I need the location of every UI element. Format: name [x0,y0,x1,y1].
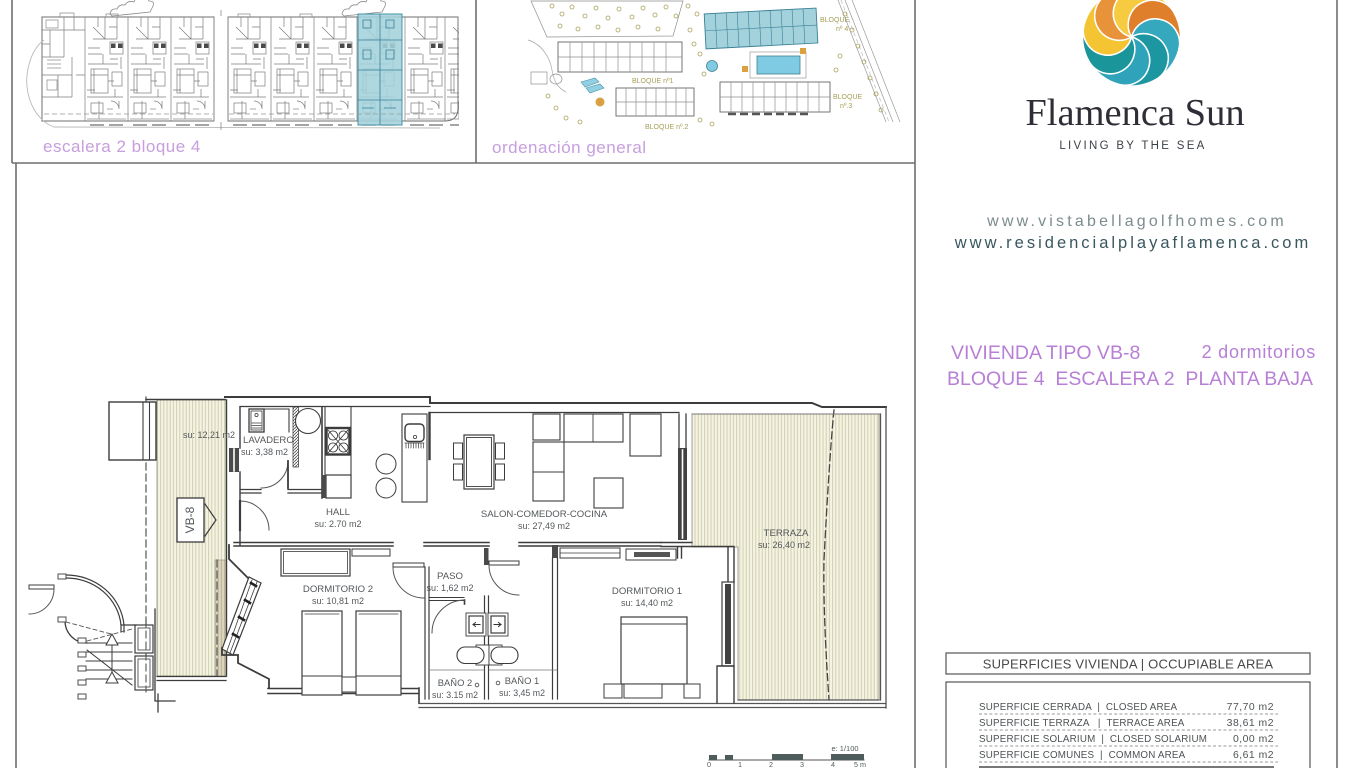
svg-text:SUPERFICIES VIVIENDA | OCCUPIA: SUPERFICIES VIVIENDA | OCCUPIABLE AREA [983,657,1274,672]
svg-text:PASO: PASO [437,571,463,582]
svg-text:SALON-COMEDOR-COCINA: SALON-COMEDOR-COCINA [481,509,608,520]
svg-text:TERRAZA: TERRAZA [764,528,809,539]
svg-text:0: 0 [707,760,711,768]
svg-text:www.vistabellagolfhomes.com: www.vistabellagolfhomes.com [986,213,1287,230]
svg-text:DORMITORIO 2: DORMITORIO 2 [303,584,373,595]
svg-text:BAÑO 2: BAÑO 2 [438,677,472,688]
svg-text:nº 4: nº 4 [836,26,848,33]
svg-text:VB-8: VB-8 [183,506,197,533]
svg-text:2: 2 [769,760,773,768]
svg-text:38,61 m2: 38,61 m2 [1227,718,1274,729]
svg-text:su: 1,62 m2: su: 1,62 m2 [426,583,473,593]
svg-text:su: 10,81 m2: su: 10,81 m2 [312,596,364,606]
svg-text:2 dormitorios: 2 dormitorios [1202,342,1316,362]
svg-text:SUPERFICIE TERRAZA | TERRAC: SUPERFICIE TERRAZA | TERRACE AREA [979,718,1185,729]
svg-text:su: 2.70 m2: su: 2.70 m2 [314,519,361,529]
svg-text:su: 3,38 m2: su: 3,38 m2 [241,447,288,457]
svg-text:LAVADERO: LAVADERO [243,435,294,446]
svg-text:Flamenca Sun: Flamenca Sun [1025,92,1244,134]
svg-text:HALL: HALL [326,507,351,518]
svg-text:www.residencialplayaflamenca.c: www.residencialplayaflamenca.com [954,234,1311,252]
svg-text:su: 26,40 m2: su: 26,40 m2 [758,540,810,550]
svg-text:SUPERFICIE CERRADA | CLOSED: SUPERFICIE CERRADA | CLOSED AREA [979,702,1178,713]
svg-text:BLOQUE nº.2: BLOQUE nº.2 [645,124,689,131]
svg-text:4: 4 [831,760,835,768]
svg-text:DORMITORIO 1: DORMITORIO 1 [612,586,682,597]
svg-text:su: 27,49 m2: su: 27,49 m2 [518,521,570,531]
svg-text:VIVIENDA TIPO VB-8: VIVIENDA TIPO VB-8 [951,342,1140,364]
svg-text:su: 14,40 m2: su: 14,40 m2 [621,598,673,608]
svg-text:su: 3,45 m2: su: 3,45 m2 [499,688,545,698]
svg-text:ordenación general: ordenación general [492,138,647,157]
svg-text:LIVING BY THE SEA: LIVING BY THE SEA [1059,140,1206,152]
svg-text:6,61 m2: 6,61 m2 [1233,750,1274,761]
svg-text:SUPERFICIE SOLARIUM | CLOSED: SUPERFICIE SOLARIUM | CLOSED SOLARIUM [979,734,1207,745]
svg-text:escalera 2 bloque 4: escalera 2 bloque 4 [43,137,201,156]
svg-text:nº.3: nº.3 [840,103,852,110]
svg-text:e: 1/100: e: 1/100 [831,744,858,753]
svg-text:SUPERFICIE COMUNES | COMMON: SUPERFICIE COMUNES | COMMON AREA [979,750,1186,761]
svg-text:1: 1 [738,760,742,768]
svg-text:BLOQUE nº1: BLOQUE nº1 [632,78,674,85]
svg-text:su: 12,21 m2: su: 12,21 m2 [183,430,235,440]
svg-text:BLOQUE: BLOQUE [833,94,863,101]
svg-text:su: 3.15 m2: su: 3.15 m2 [432,690,478,700]
svg-text:0,00 m2: 0,00 m2 [1233,734,1274,745]
svg-text:5 m: 5 m [854,760,866,768]
svg-text:3: 3 [800,760,804,768]
svg-text:BAÑO 1: BAÑO 1 [505,675,539,686]
svg-text:BLOQUE 4 ESCALERA 2 PLANTA B: BLOQUE 4 ESCALERA 2 PLANTA BAJA [947,368,1313,390]
svg-text:77,70 m2: 77,70 m2 [1227,702,1274,713]
